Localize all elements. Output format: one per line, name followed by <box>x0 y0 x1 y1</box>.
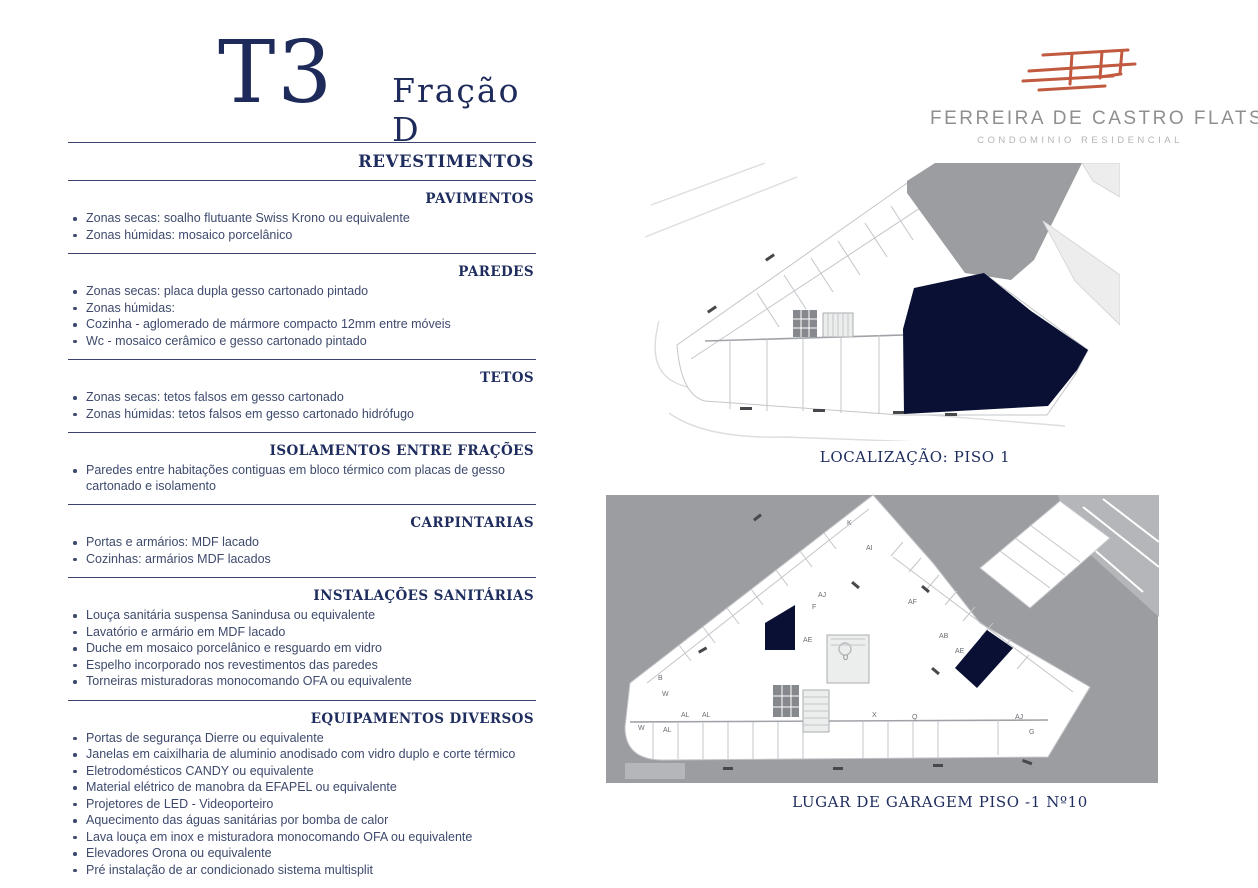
section-heading: INSTALAÇÕES SANITÁRIAS <box>68 588 534 604</box>
spec-item: Janelas em caixilharia de aluminio anodi… <box>68 747 536 763</box>
brand-logo-icon <box>1015 38 1145 106</box>
stall-label: W <box>662 691 669 698</box>
stall-label: AE <box>803 637 813 644</box>
spec-item: Lava louça em inox e misturadora monocom… <box>68 830 536 846</box>
stall-label: K <box>847 520 852 527</box>
spec-item: Zonas secas: tetos falsos em gesso carto… <box>68 390 536 406</box>
stall-label: AJ <box>818 592 826 599</box>
stall-label: Q <box>912 714 918 721</box>
spec-section: EQUIPAMENTOS DIVERSOSPortas de segurança… <box>68 711 536 879</box>
unit-title: T3 Fração D <box>68 30 536 142</box>
spec-item: Duche em mosaico porcelânico e resguardo… <box>68 641 536 657</box>
stall-label: X <box>872 712 877 719</box>
section-items: Zonas secas: soalho flutuante Swiss Kron… <box>68 211 536 243</box>
garage-floorplan: KAIAJFAEAFABAEUBWALALWALXQAJG <box>603 487 1160 787</box>
spec-item: Espelho incorporado nos revestimentos da… <box>68 658 536 674</box>
section-heading: ISOLAMENTOS ENTRE FRAÇÕES <box>68 443 534 459</box>
fraction-title: Fração D <box>392 71 536 149</box>
main-heading-divider <box>68 180 536 181</box>
spec-item: Wc - mosaico cerâmico e gesso cartonado … <box>68 334 536 350</box>
section-divider <box>68 577 536 578</box>
section-heading: EQUIPAMENTOS DIVERSOS <box>68 711 534 727</box>
spec-sections: PAVIMENTOSZonas secas: soalho flutuante … <box>68 191 536 878</box>
section-heading: PAVIMENTOS <box>68 191 534 207</box>
unit-type-title: T3 <box>218 30 334 116</box>
spec-item: Portas e armários: MDF lacado <box>68 535 536 551</box>
stall-label: F <box>812 604 816 611</box>
spec-section: CARPINTARIASPortas e armários: MDF lacad… <box>68 515 536 578</box>
stall-label: W <box>638 725 645 732</box>
location-floorplan <box>645 163 1120 441</box>
section-heading: PAREDES <box>68 264 534 280</box>
stall-label: AJ <box>1015 714 1023 721</box>
spec-item: Aquecimento das águas sanitárias por bom… <box>68 813 536 829</box>
section-divider <box>68 504 536 505</box>
brand-name: FERREIRA DE CASTRO FLATS <box>930 108 1230 130</box>
stall-label: AB <box>939 633 949 640</box>
section-divider <box>68 432 536 433</box>
stall-label: B <box>658 675 663 682</box>
spec-item: Louça sanitária suspensa Sanindusa ou eq… <box>68 608 536 624</box>
stall-label: AI <box>866 545 873 552</box>
spec-section: INSTALAÇÕES SANITÁRIASLouça sanitária su… <box>68 588 536 701</box>
spec-item: Paredes entre habitações contiguas em bl… <box>68 463 536 494</box>
stall-label: U <box>843 655 848 662</box>
section-items: Zonas secas: placa dupla gesso cartonado… <box>68 284 536 349</box>
spec-item: Pré instalação de ar condicionado sistem… <box>68 863 536 879</box>
spec-item: Cozinhas: armários MDF lacados <box>68 552 536 568</box>
spec-item: Eletrodomésticos CANDY ou equivalente <box>68 764 536 780</box>
stall-label: AL <box>681 712 690 719</box>
spec-section: PAVIMENTOSZonas secas: soalho flutuante … <box>68 191 536 254</box>
section-items: Paredes entre habitações contiguas em bl… <box>68 463 536 494</box>
brand-subtitle: CONDOMINIO RESIDENCIAL <box>930 135 1230 146</box>
section-divider <box>68 253 536 254</box>
stall-label: G <box>1029 729 1034 736</box>
spec-section: PAREDESZonas secas: placa dupla gesso ca… <box>68 264 536 360</box>
spec-item: Zonas secas: soalho flutuante Swiss Kron… <box>68 211 536 227</box>
stall-label: AL <box>663 727 672 734</box>
section-heading: CARPINTARIAS <box>68 515 534 531</box>
section-divider <box>68 359 536 360</box>
stall-label: AF <box>908 599 917 606</box>
spec-section: ISOLAMENTOS ENTRE FRAÇÕESParedes entre h… <box>68 443 536 505</box>
section-items: Louça sanitária suspensa Sanindusa ou eq… <box>68 608 536 690</box>
location-floorplan-drawing <box>645 163 1120 441</box>
section-items: Zonas secas: tetos falsos em gesso carto… <box>68 390 536 422</box>
spec-main-heading: REVESTIMENTOS <box>68 152 534 171</box>
spec-item: Projetores de LED - Videoporteiro <box>68 797 536 813</box>
section-divider <box>68 700 536 701</box>
garage-caption: LUGAR DE GARAGEM PISO -1 Nº10 <box>660 793 1220 811</box>
brand-block: FERREIRA DE CASTRO FLATS CONDOMINIO RESI… <box>930 38 1230 146</box>
spec-column: T3 Fração D REVESTIMENTOS PAVIMENTOSZona… <box>68 30 536 888</box>
section-items: Portas de segurança Dierre ou equivalent… <box>68 731 536 879</box>
section-items: Portas e armários: MDF lacadoCozinhas: a… <box>68 535 536 567</box>
spec-item: Elevadores Orona ou equivalente <box>68 846 536 862</box>
spec-item: Lavatório e armário em MDF lacado <box>68 625 536 641</box>
spec-item: Zonas secas: placa dupla gesso cartonado… <box>68 284 536 300</box>
section-heading: TETOS <box>68 370 534 386</box>
spec-item: Material elétrico de manobra da EFAPEL o… <box>68 780 536 796</box>
stall-label: AE <box>955 648 965 655</box>
spec-item: Zonas húmidas: mosaico porcelânico <box>68 228 536 244</box>
spec-item: Cozinha - aglomerado de mármore compacto… <box>68 317 536 333</box>
spec-item: Torneiras misturadoras monocomando OFA o… <box>68 674 536 690</box>
spec-item: Zonas húmidas: tetos falsos em gesso car… <box>68 407 536 423</box>
location-caption: LOCALIZAÇÃO: PISO 1 <box>705 448 1125 466</box>
spec-item: Zonas húmidas: <box>68 301 536 317</box>
spec-section: TETOSZonas secas: tetos falsos em gesso … <box>68 370 536 433</box>
garage-floorplan-drawing: KAIAJFAEAFABAEUBWALALWALXQAJG <box>603 487 1160 787</box>
spec-item: Portas de segurança Dierre ou equivalent… <box>68 731 536 747</box>
stall-label: AL <box>702 712 711 719</box>
